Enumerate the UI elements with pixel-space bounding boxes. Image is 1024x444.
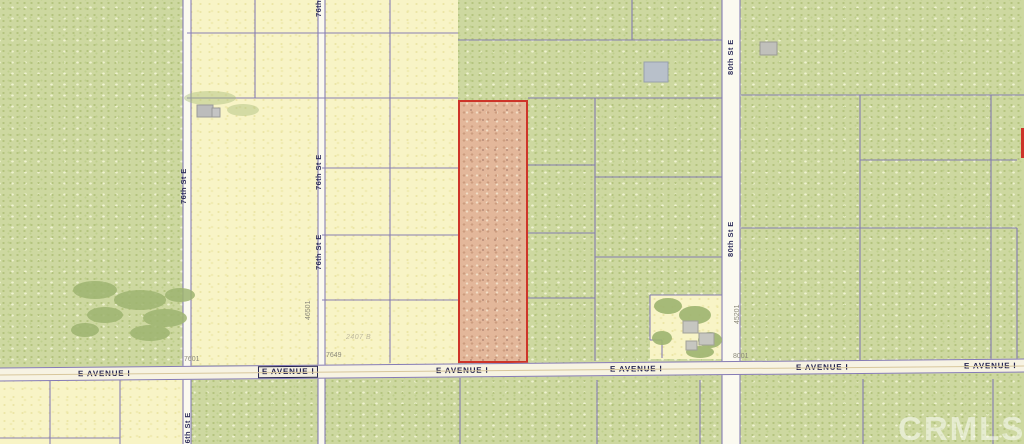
avenue-label: E AVENUE I bbox=[436, 366, 489, 375]
avenue-label: E AVENUE I bbox=[796, 363, 849, 372]
tree-cluster-house bbox=[184, 91, 259, 116]
tree-cluster-left bbox=[71, 281, 195, 341]
avenue-label: E AVENUE I bbox=[964, 361, 1017, 370]
building-icon bbox=[644, 62, 668, 82]
avenue-label: E AVENUE I bbox=[610, 364, 663, 373]
house-icon bbox=[212, 108, 220, 117]
house-icon bbox=[197, 105, 213, 117]
avenue-label: E AVENUE I bbox=[258, 366, 319, 379]
parcel-map: E AVENUE IE AVENUE IE AVENUE IE AVENUE I… bbox=[0, 0, 1024, 444]
building-icon bbox=[686, 341, 697, 350]
building-group bbox=[197, 42, 777, 350]
building-icon bbox=[699, 333, 714, 345]
building-icon bbox=[760, 42, 777, 55]
avenue-label: E AVENUE I bbox=[78, 369, 131, 378]
building-icon bbox=[683, 321, 698, 333]
